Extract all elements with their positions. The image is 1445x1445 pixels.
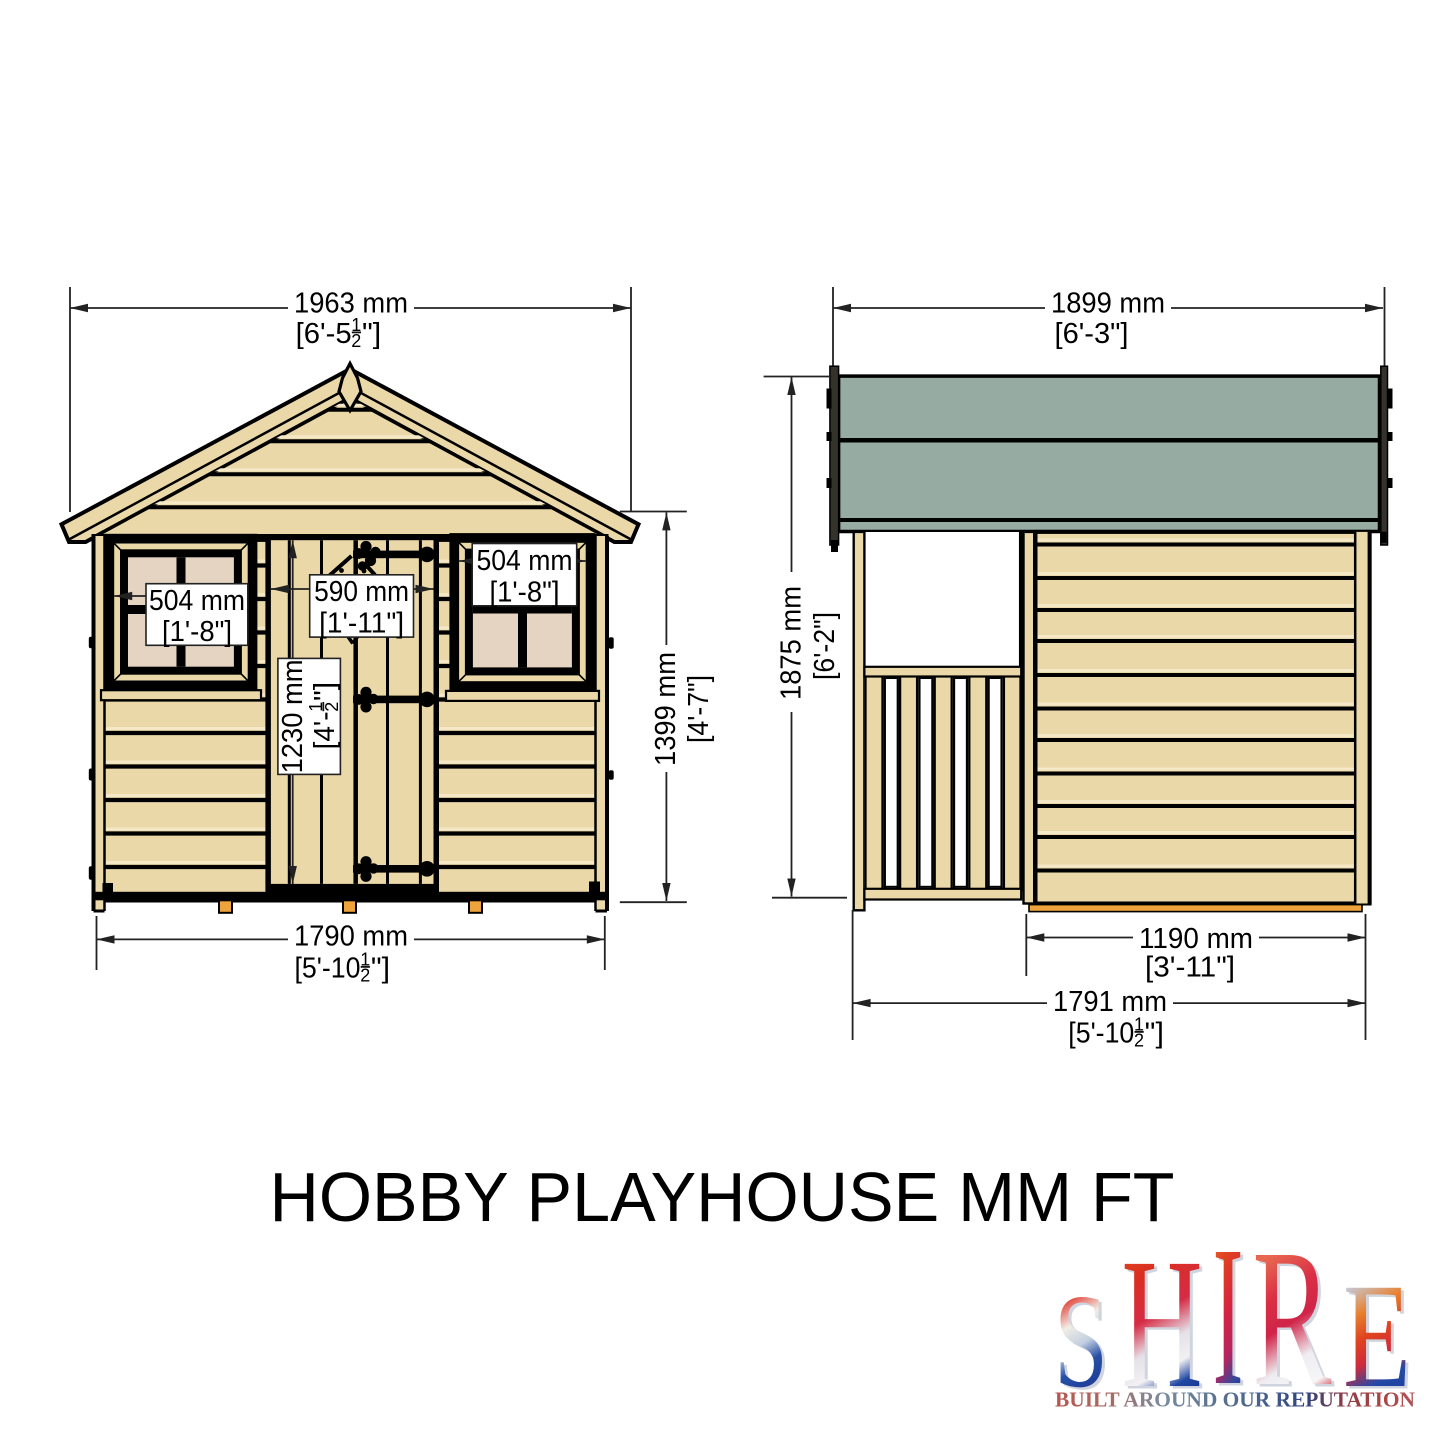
svg-text:"]: "] <box>309 682 341 701</box>
svg-text:BUILT AROUND OUR REPUTATION: BUILT AROUND OUR REPUTATION <box>1055 1388 1415 1412</box>
svg-text:2: 2 <box>1134 1031 1144 1051</box>
svg-text:[6'-3"]: [6'-3"] <box>1055 318 1129 350</box>
svg-text:1790 mm: 1790 mm <box>294 921 408 953</box>
svg-text:[3'-11"]: [3'-11"] <box>1145 952 1235 984</box>
svg-text:1190 mm: 1190 mm <box>1139 923 1253 955</box>
svg-text:2: 2 <box>322 702 342 712</box>
svg-text:504 mm: 504 mm <box>149 585 245 617</box>
svg-text:504 mm: 504 mm <box>477 545 573 577</box>
svg-text:1791 mm: 1791 mm <box>1053 986 1167 1018</box>
svg-text:"]: "] <box>371 953 390 985</box>
svg-text:[5'-10: [5'-10 <box>1068 1018 1134 1050</box>
svg-text:[4'-: [4'- <box>309 711 341 749</box>
svg-text:"]: "] <box>1145 1018 1164 1050</box>
svg-text:[1'-8"]: [1'-8"] <box>490 576 560 608</box>
svg-text:[6'-2"]: [6'-2"] <box>809 612 841 680</box>
svg-text:[6'-5: [6'-5 <box>296 318 352 350</box>
svg-text:[4'-7"]: [4'-7"] <box>683 675 715 743</box>
svg-text:1899 mm: 1899 mm <box>1051 288 1165 320</box>
svg-text:[1'-8"]: [1'-8"] <box>162 616 232 648</box>
svg-text:2: 2 <box>351 331 361 351</box>
svg-text:1875 mm: 1875 mm <box>776 586 808 700</box>
svg-text:1230 mm: 1230 mm <box>277 659 309 773</box>
svg-text:590 mm: 590 mm <box>314 576 409 608</box>
svg-text:1399 mm: 1399 mm <box>650 652 682 766</box>
svg-text:"]: "] <box>362 318 381 350</box>
svg-text:[5'-10: [5'-10 <box>295 953 361 985</box>
svg-text:[1'-11"]: [1'-11"] <box>319 608 404 640</box>
svg-text:2: 2 <box>360 966 370 986</box>
svg-text:HOBBY PLAYHOUSE MM FT: HOBBY PLAYHOUSE MM FT <box>270 1158 1175 1236</box>
